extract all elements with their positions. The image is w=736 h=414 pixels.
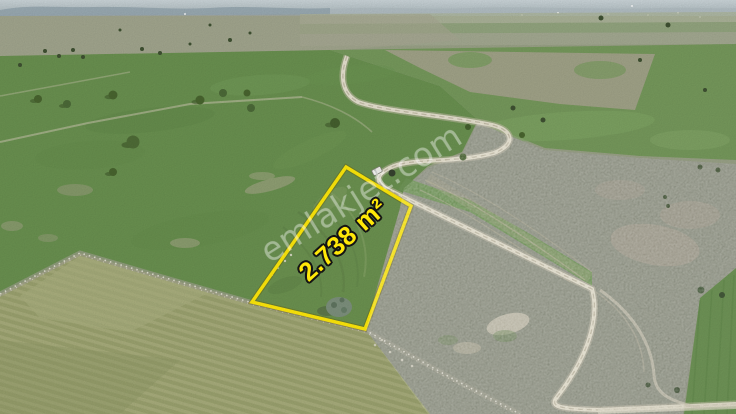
listing-photo: emlakjet.com 2.738 m² (0, 0, 736, 414)
